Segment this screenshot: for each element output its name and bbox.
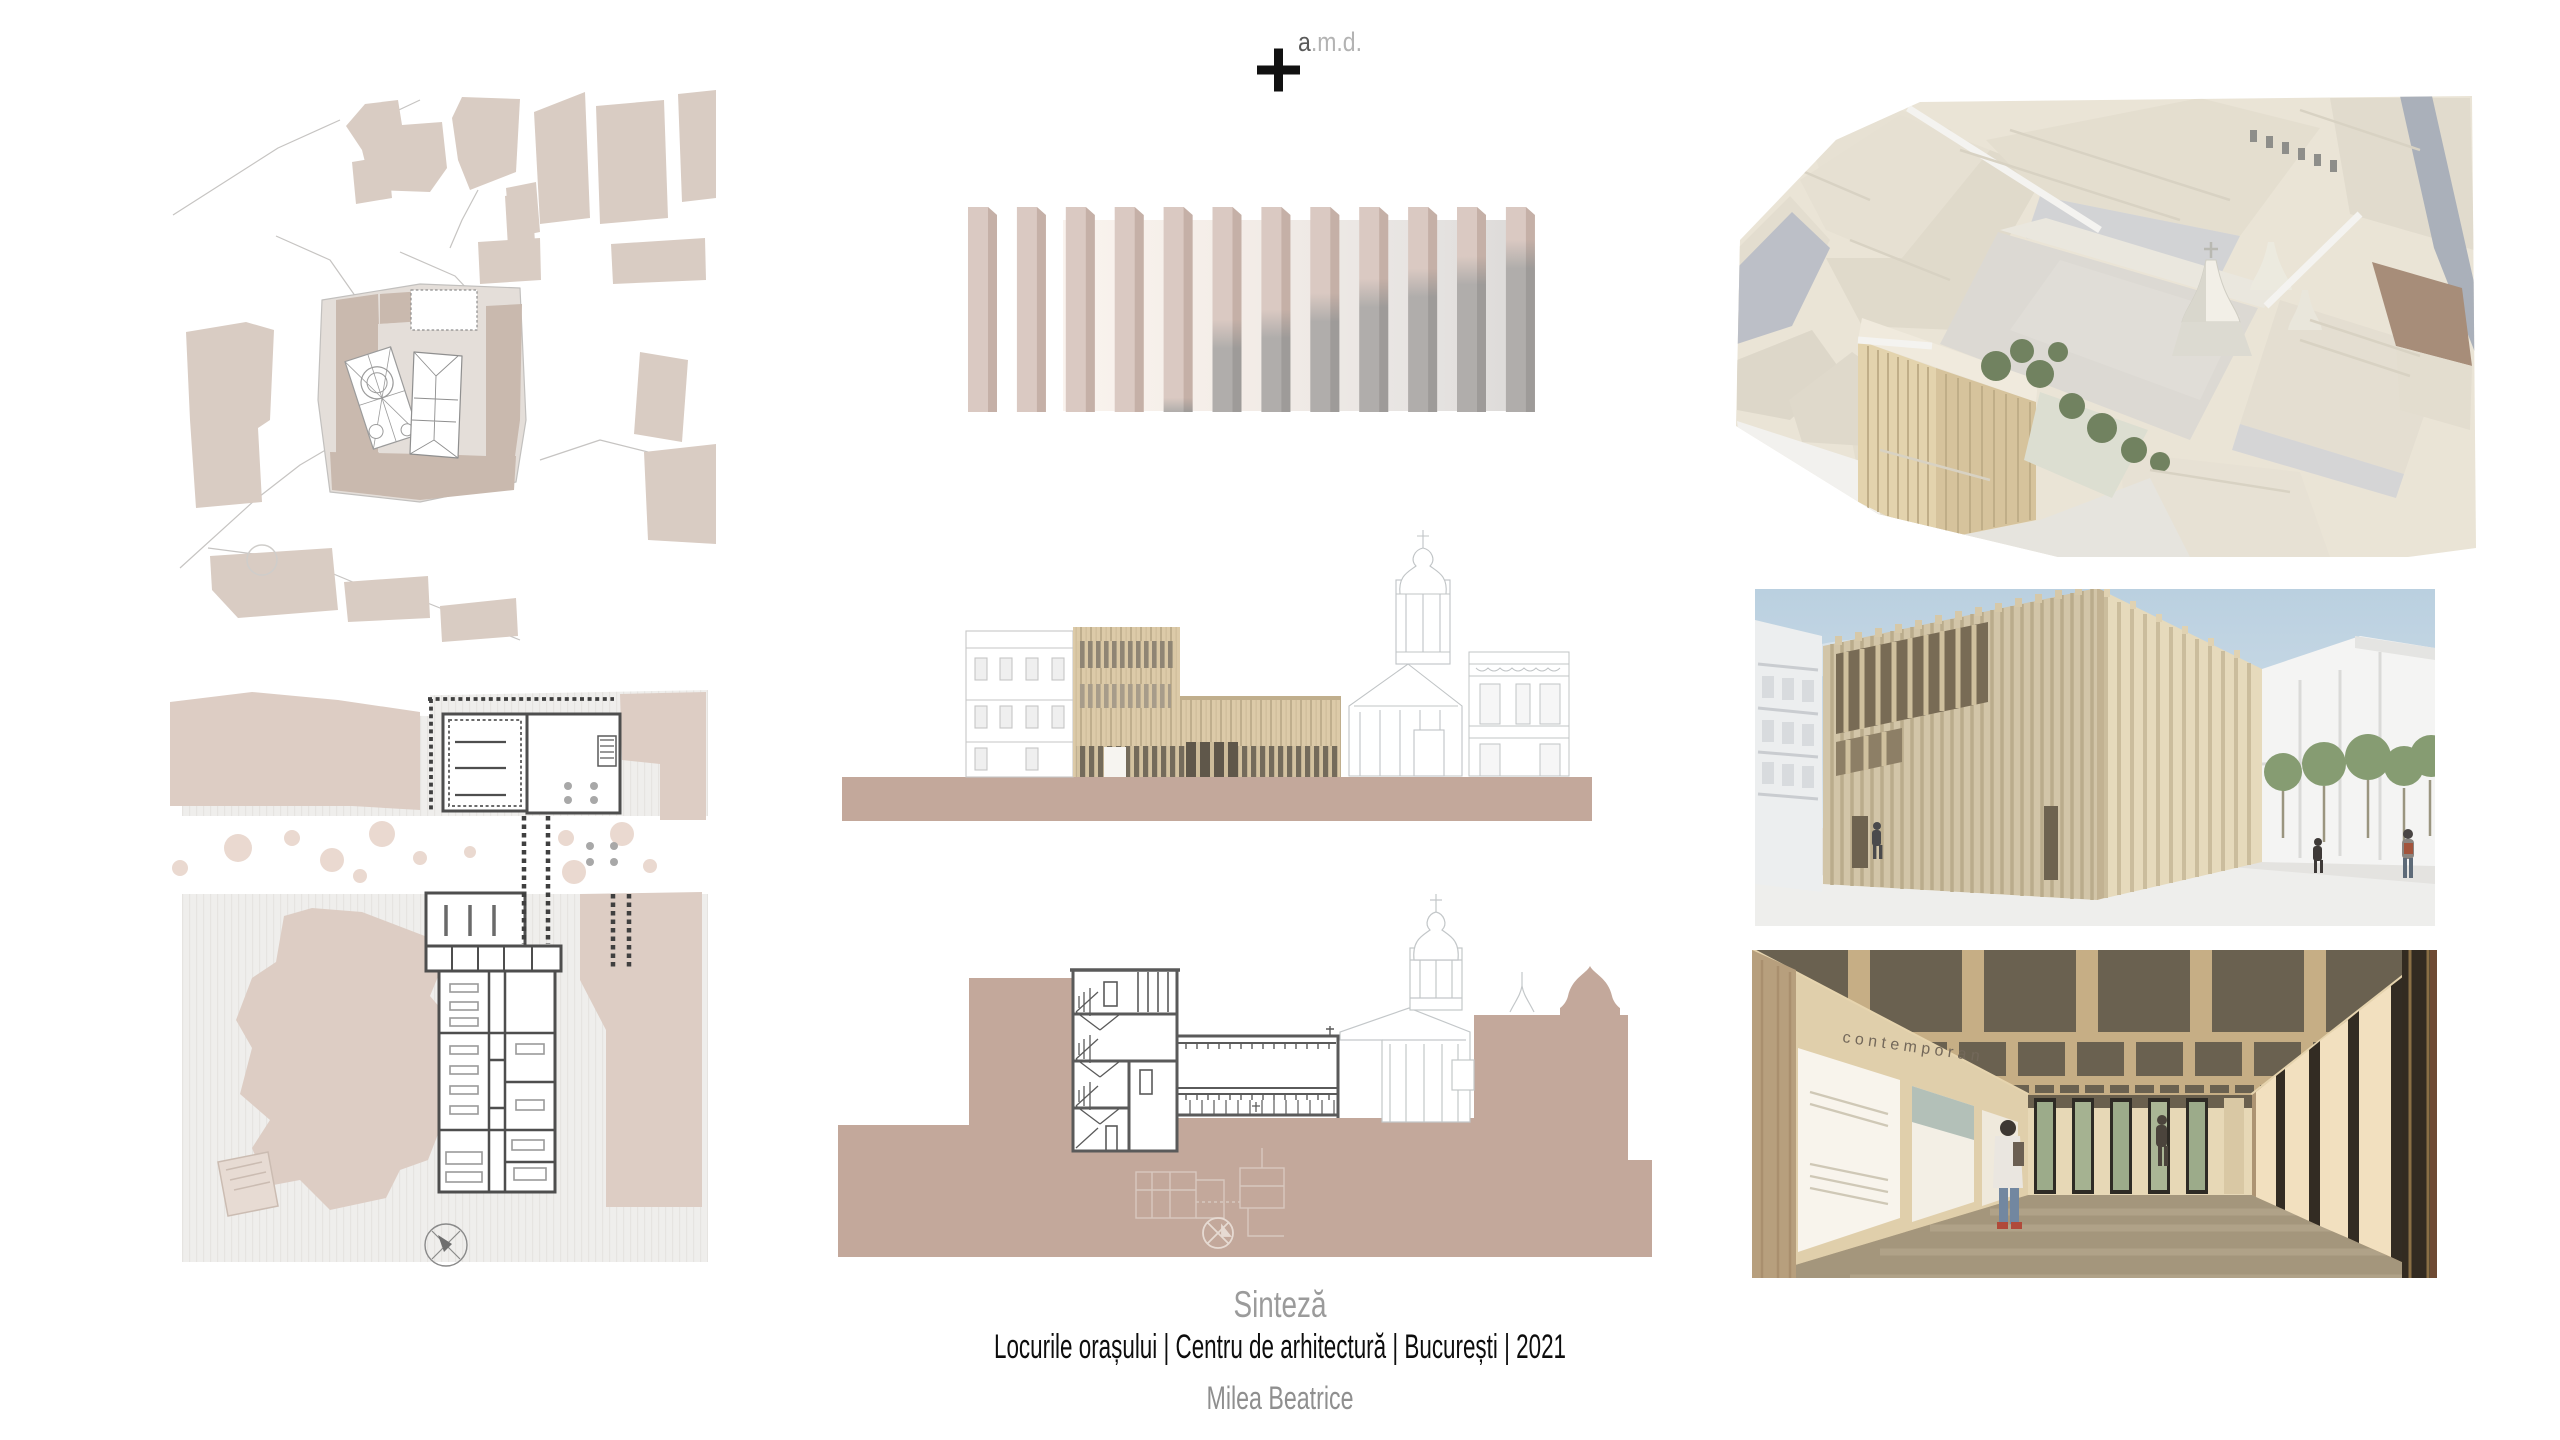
svg-text:Locurile orașului | Centru de: Locurile orașului | Centru de arhitectur… <box>994 1328 1566 1366</box>
svg-text:Sinteză: Sinteză <box>1234 1284 1327 1325</box>
svg-text:Milea Beatrice: Milea Beatrice <box>1207 1380 1354 1416</box>
svg-text:a.m.d.: a.m.d. <box>1298 27 1362 57</box>
